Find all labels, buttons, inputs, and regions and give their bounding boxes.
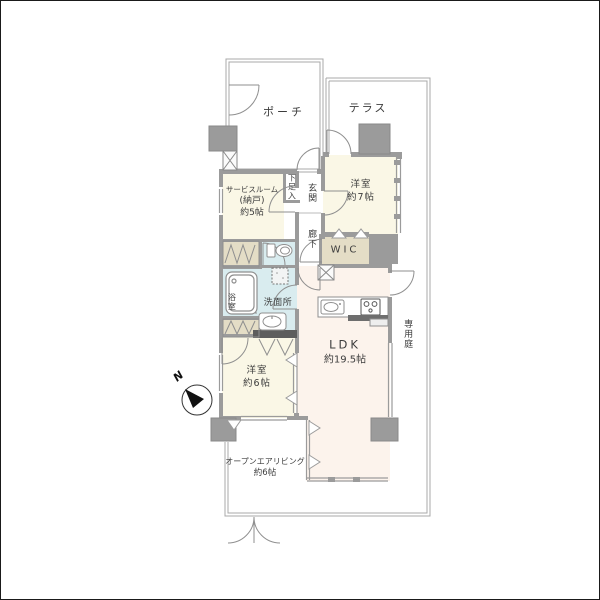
floorplan-image: ポーチ テラス サービスルーム (納戸) 約5帖 下足入 玄関 廊下 洋室 約7… (0, 0, 600, 600)
kitchen-sink-icon (321, 300, 344, 314)
vanity-sink-icon (259, 313, 286, 330)
floorplan-drawing (1, 1, 599, 599)
bathtub-icon (226, 272, 257, 314)
washer-space-icon (272, 268, 288, 284)
north-compass-icon (182, 385, 212, 415)
stove-icon (361, 299, 380, 315)
toilet-icon (267, 244, 292, 257)
counter-end-cabinet (370, 319, 388, 326)
